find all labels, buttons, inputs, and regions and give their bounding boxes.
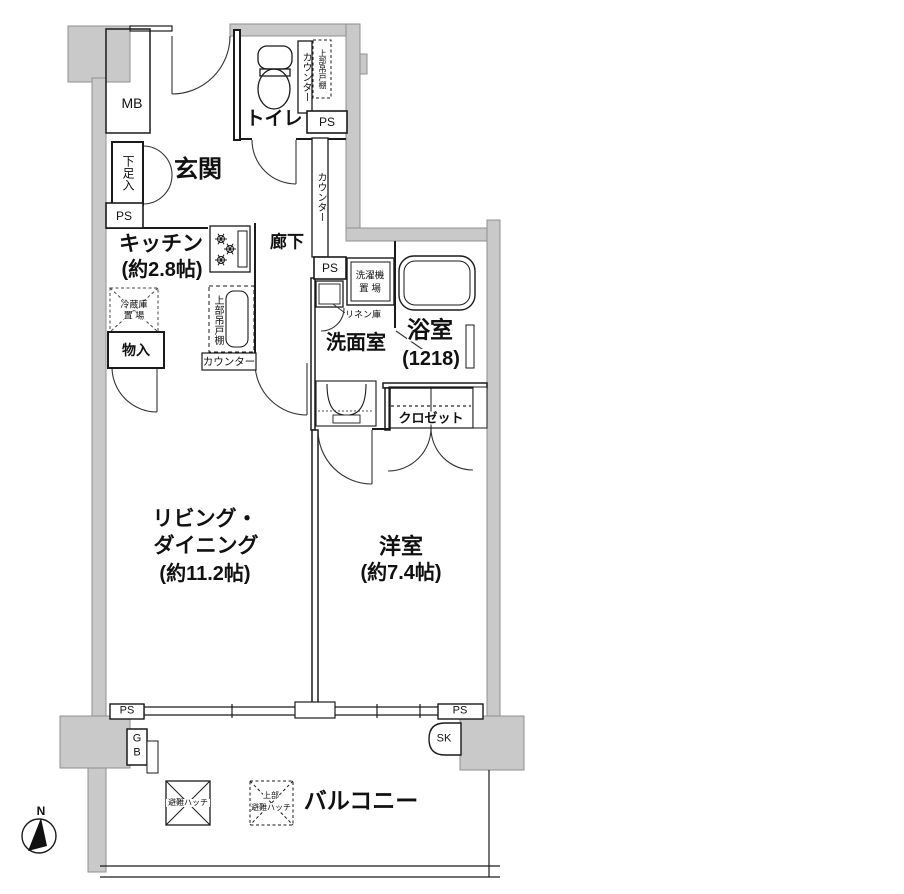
bath-niche bbox=[466, 325, 474, 368]
upper-hatch-label-2: 避難ハッチ bbox=[251, 804, 291, 812]
kitchen-counter-label: カウンター bbox=[203, 357, 256, 368]
toilet-tank bbox=[258, 46, 292, 69]
linen-shaft-inner bbox=[319, 284, 340, 304]
wall-jog bbox=[360, 54, 367, 74]
sk-label: SK bbox=[437, 734, 452, 745]
wall-mid-horizontal bbox=[346, 228, 491, 241]
kitchen-label: キッチン bbox=[119, 234, 203, 255]
toilet-counter-label: カウンター bbox=[300, 52, 310, 102]
compass-needle bbox=[28, 818, 47, 851]
wall-west-lower bbox=[88, 768, 106, 872]
gb-label-g: G bbox=[133, 734, 142, 745]
fridge-label-1: 冷蔵庫 bbox=[120, 301, 147, 310]
shoe-cabinet-door-arc-bottom bbox=[143, 175, 172, 204]
linen-door-arc bbox=[321, 308, 344, 331]
storage-label: 物入 bbox=[122, 343, 150, 357]
gb-label-b: B bbox=[133, 748, 140, 759]
toilet-cabinet-label: 上部吊戸棚 bbox=[318, 49, 326, 89]
upper-hatch-label-1: 上部 bbox=[263, 792, 279, 800]
living-label-1: リビング・ bbox=[153, 509, 258, 530]
ps-label-1: PS bbox=[116, 210, 132, 222]
bath-label: 浴室 bbox=[407, 319, 453, 342]
washer-box-inner bbox=[351, 262, 390, 301]
living-size-label: (約11.2帖) bbox=[159, 564, 250, 584]
washer-box-outer bbox=[347, 258, 394, 305]
ps-label-3: PS bbox=[322, 262, 338, 274]
balcony-structure bbox=[100, 723, 500, 877]
fridge-label-2: 置 場 bbox=[124, 312, 145, 321]
toilet-west-wall bbox=[234, 30, 240, 140]
bath-size-label: (1218) bbox=[402, 349, 460, 369]
north-label: N bbox=[37, 805, 46, 817]
toilet-bowl bbox=[258, 69, 290, 109]
pillar-bottom-left bbox=[60, 716, 130, 768]
hall-counter-label: カウンター bbox=[315, 172, 325, 222]
hatch-label: 避難ハッチ bbox=[166, 799, 210, 807]
bathtub-outer bbox=[399, 256, 475, 310]
entrance-label: 玄関 bbox=[174, 158, 222, 182]
linen-label: リネン庫 bbox=[345, 311, 381, 320]
bedroom-label: 洋室 bbox=[379, 536, 423, 558]
vanity-front bbox=[333, 415, 360, 423]
ps-label-4: PS bbox=[120, 706, 135, 717]
pillar-bottom-right bbox=[460, 716, 524, 770]
entrance-door-arc bbox=[172, 36, 230, 94]
bedroom-size-label: (約7.4帖) bbox=[360, 563, 441, 583]
floor-plan: MB 玄関 下足入 トイレ カウンター 上部吊戸棚 PS PS キッチン (約2… bbox=[0, 0, 904, 894]
hallway-label: 廊下 bbox=[270, 234, 304, 251]
balcony-label: バルコニー bbox=[304, 790, 419, 813]
vanity-counter bbox=[316, 381, 376, 426]
living-label-2: ダイニング bbox=[154, 536, 259, 557]
vanity-basin-left bbox=[327, 384, 344, 415]
pillar-top-left bbox=[68, 26, 130, 82]
stove-grill bbox=[238, 231, 247, 267]
wall-north bbox=[230, 24, 360, 36]
toilet-fixture bbox=[258, 46, 292, 109]
washroom-west-wall bbox=[311, 278, 315, 430]
hallway-living-door-arc bbox=[255, 363, 307, 415]
bathtub-inner bbox=[404, 261, 470, 305]
burner-icon bbox=[215, 234, 236, 265]
washer-label-1: 洗濯機 bbox=[356, 271, 385, 281]
vanity-basin-right bbox=[349, 384, 366, 415]
compass bbox=[22, 818, 56, 853]
wall-east bbox=[487, 220, 500, 718]
wall-west bbox=[92, 78, 106, 718]
storage-door-arc bbox=[112, 367, 157, 412]
ps-label-5: PS bbox=[453, 706, 468, 717]
kitchen-sink bbox=[226, 291, 248, 347]
partition-living-bedroom bbox=[312, 430, 318, 712]
vanity bbox=[316, 381, 376, 426]
washroom-door-arc bbox=[318, 430, 372, 484]
closet-east-cavity bbox=[473, 387, 487, 428]
wall-northeast-vertical bbox=[346, 24, 360, 230]
washer-label-2: 置 場 bbox=[359, 284, 381, 294]
washer-space bbox=[347, 258, 394, 305]
shoe-cabinet-door-arc-top bbox=[143, 146, 172, 175]
floor-plan-drawing bbox=[0, 0, 904, 894]
toilet-label: トイレ bbox=[245, 110, 302, 129]
washroom-label: 洗面室 bbox=[326, 333, 386, 353]
ps-label-2: PS bbox=[319, 116, 335, 128]
south-windows bbox=[110, 702, 483, 719]
mb-label: MB bbox=[122, 96, 143, 110]
shoe-cabinet-label: 下足入 bbox=[122, 155, 134, 191]
closet-label: クロゼット bbox=[396, 412, 465, 425]
kitchen-cabinet-label: 上部吊戸棚 bbox=[212, 295, 222, 345]
gb-tab bbox=[147, 741, 158, 773]
window-sill-block bbox=[295, 702, 335, 718]
kitchen-size-label: (約2.8帖) bbox=[121, 260, 202, 280]
closet-door-arc-left bbox=[388, 428, 431, 471]
kitchen-equipment bbox=[202, 226, 256, 370]
toilet-door-arc bbox=[252, 140, 296, 184]
closet-door-arc-right bbox=[431, 428, 473, 470]
